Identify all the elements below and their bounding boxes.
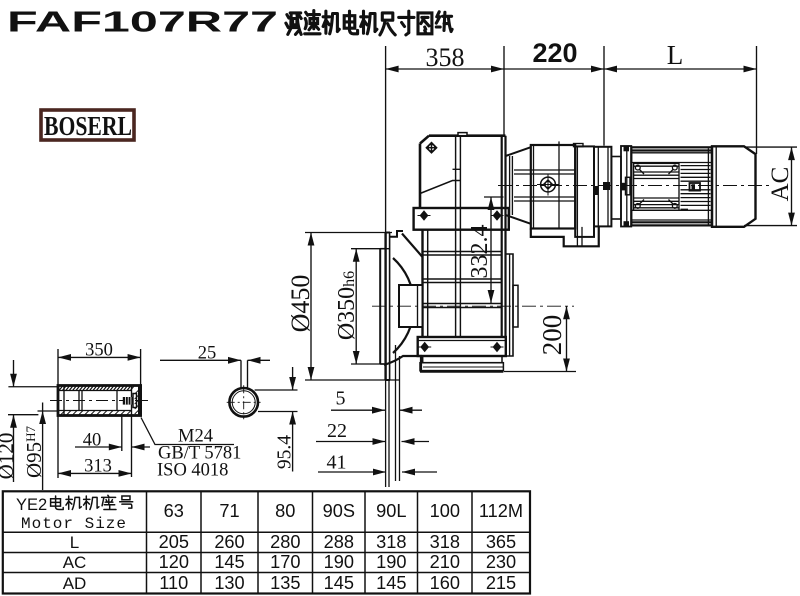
svg-text:Ø120: Ø120 [0, 433, 18, 480]
svg-text:63: 63 [164, 501, 184, 521]
svg-text:210: 210 [430, 552, 460, 572]
svg-text:25: 25 [198, 344, 217, 364]
svg-text:145: 145 [324, 573, 354, 593]
svg-text:190: 190 [324, 552, 354, 572]
svg-text:350: 350 [85, 341, 113, 361]
svg-text:205: 205 [159, 532, 189, 552]
svg-text:71: 71 [219, 501, 239, 521]
svg-text:365: 365 [486, 532, 516, 552]
svg-text:22: 22 [327, 420, 347, 442]
svg-text:260: 260 [214, 532, 244, 552]
svg-text:190: 190 [376, 552, 406, 572]
svg-text:145: 145 [376, 573, 406, 593]
svg-text:AC: AC [767, 167, 794, 202]
svg-text:L: L [70, 533, 79, 552]
svg-text:200: 200 [537, 315, 567, 356]
svg-text:ISO 4018: ISO 4018 [157, 461, 228, 481]
svg-text:40: 40 [83, 431, 102, 451]
svg-text:160: 160 [430, 573, 460, 593]
svg-text:280: 280 [270, 532, 300, 552]
svg-text:288: 288 [324, 532, 354, 552]
svg-text:313: 313 [84, 457, 112, 477]
svg-text:90S: 90S [323, 501, 355, 521]
svg-text:110: 110 [159, 573, 188, 593]
svg-text:90L: 90L [376, 501, 406, 521]
svg-text:145: 145 [214, 552, 244, 572]
svg-text:Motor Size: Motor Size [21, 515, 127, 533]
svg-text:358: 358 [426, 43, 465, 72]
svg-text:80: 80 [275, 501, 295, 521]
svg-text:220: 220 [532, 38, 577, 68]
svg-text:318: 318 [376, 532, 406, 552]
svg-text:Ø450: Ø450 [286, 275, 315, 333]
svg-text:135: 135 [270, 573, 300, 593]
svg-text:BOSERL: BOSERL [44, 111, 132, 141]
svg-text:112M: 112M [479, 501, 523, 521]
svg-text:YE2: YE2 [16, 496, 47, 514]
svg-text:41: 41 [327, 452, 347, 474]
svg-text:318: 318 [430, 532, 460, 552]
svg-text:170: 170 [270, 552, 300, 572]
svg-text:AD: AD [63, 574, 87, 593]
svg-text:130: 130 [214, 573, 244, 593]
svg-text:100: 100 [430, 501, 460, 521]
svg-text:AC: AC [63, 553, 87, 572]
svg-text:120: 120 [159, 552, 189, 572]
svg-text:5: 5 [336, 388, 346, 410]
svg-text:230: 230 [486, 552, 516, 572]
svg-text:215: 215 [486, 573, 516, 593]
svg-text:95.4: 95.4 [275, 435, 296, 469]
svg-text:FAF107R77: FAF107R77 [7, 7, 278, 39]
svg-text:L: L [667, 40, 684, 70]
